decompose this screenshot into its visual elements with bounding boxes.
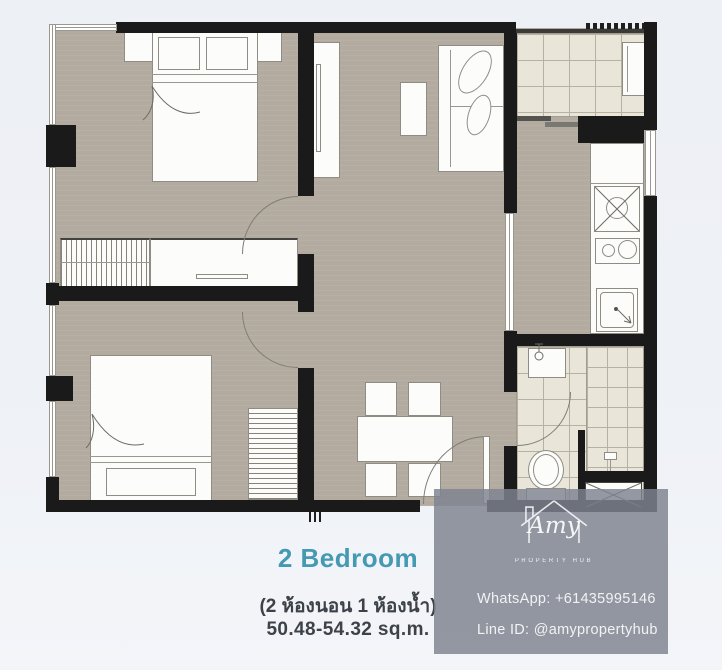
- watermark-line-id: Line ID: @amypropertyhub: [477, 622, 658, 638]
- wall-column: [46, 125, 76, 167]
- wall-bottom: [48, 500, 420, 512]
- toilet-seat: [533, 454, 559, 486]
- basin-icon: [528, 348, 566, 378]
- dining-chair: [365, 382, 397, 416]
- wall-bedrooms-living: [298, 368, 314, 500]
- watermark-brand-script: Amy: [522, 513, 586, 539]
- window-right: [645, 130, 656, 196]
- sliding-balcony-door: [517, 116, 551, 121]
- window-bedroom-1: [49, 167, 56, 283]
- dining-chair: [408, 382, 441, 416]
- wall-bedrooms-living: [298, 22, 314, 196]
- watermark-overlay: Amy PROPERTY HUB WhatsApp: +61435995146 …: [434, 489, 668, 654]
- dresser-handle: [196, 274, 248, 279]
- dimension-ticks: [309, 512, 323, 522]
- ac-condenser-icon: [622, 42, 646, 96]
- wall-balcony-kitchen-corner: [578, 116, 644, 143]
- wall-right: [644, 22, 657, 130]
- sofa-seat-line: [450, 50, 451, 167]
- stove-burner: [618, 240, 637, 259]
- kitchen-pass-panel: [505, 213, 514, 331]
- wall-bathroom-top: [504, 334, 644, 346]
- wall-living-kitchen: [504, 33, 517, 213]
- ac-condenser-line: [627, 46, 628, 92]
- window-top-left: [49, 24, 117, 31]
- wall-bathroom-left: [504, 346, 517, 392]
- bed-1-headboard-line: [152, 74, 258, 75]
- wardrobe-mid-line: [60, 262, 150, 263]
- watermark-whatsapp: WhatsApp: +61435995146: [477, 591, 656, 607]
- window-bedroom-2: [49, 305, 56, 376]
- coffee-table: [400, 82, 427, 136]
- wardrobe-bedroom-2: [248, 408, 298, 500]
- stove-burner: [602, 244, 615, 257]
- bed-2-line: [90, 462, 212, 463]
- wall-right: [644, 196, 657, 478]
- bed-1-duvet-line: [152, 82, 258, 83]
- bed-2-line: [90, 456, 212, 457]
- bed-2-headboard: [106, 468, 196, 496]
- wardrobe-bedroom-1: [60, 238, 150, 290]
- wall-column: [46, 376, 73, 401]
- watermark-brand-subtitle: PROPERTY HUB: [492, 558, 616, 564]
- wall-left: [46, 477, 59, 512]
- fridge-divider: [590, 183, 644, 184]
- window-bedroom-1: [49, 24, 56, 125]
- wall-top: [116, 22, 516, 33]
- washing-machine-dot: [614, 307, 618, 311]
- pillow: [158, 37, 200, 70]
- dining-chair: [365, 463, 397, 497]
- floor-plan-page: 2 Bedroom (2 ห้องนอน 1 ห้องน้ำ) 50.48-54…: [0, 0, 722, 670]
- wall-between-bedrooms: [46, 286, 298, 301]
- kitchen-sink-bowl: [606, 197, 628, 219]
- tv: [316, 64, 321, 152]
- louvre-vent-icon: [586, 23, 646, 29]
- pillow: [206, 37, 248, 70]
- dining-table: [357, 416, 453, 462]
- sliding-balcony-door: [545, 122, 579, 127]
- window-bedroom-2: [49, 401, 56, 477]
- wall-balcony-top: [516, 29, 646, 33]
- wall-bedrooms-living: [298, 254, 314, 312]
- shower-icon: [604, 452, 617, 460]
